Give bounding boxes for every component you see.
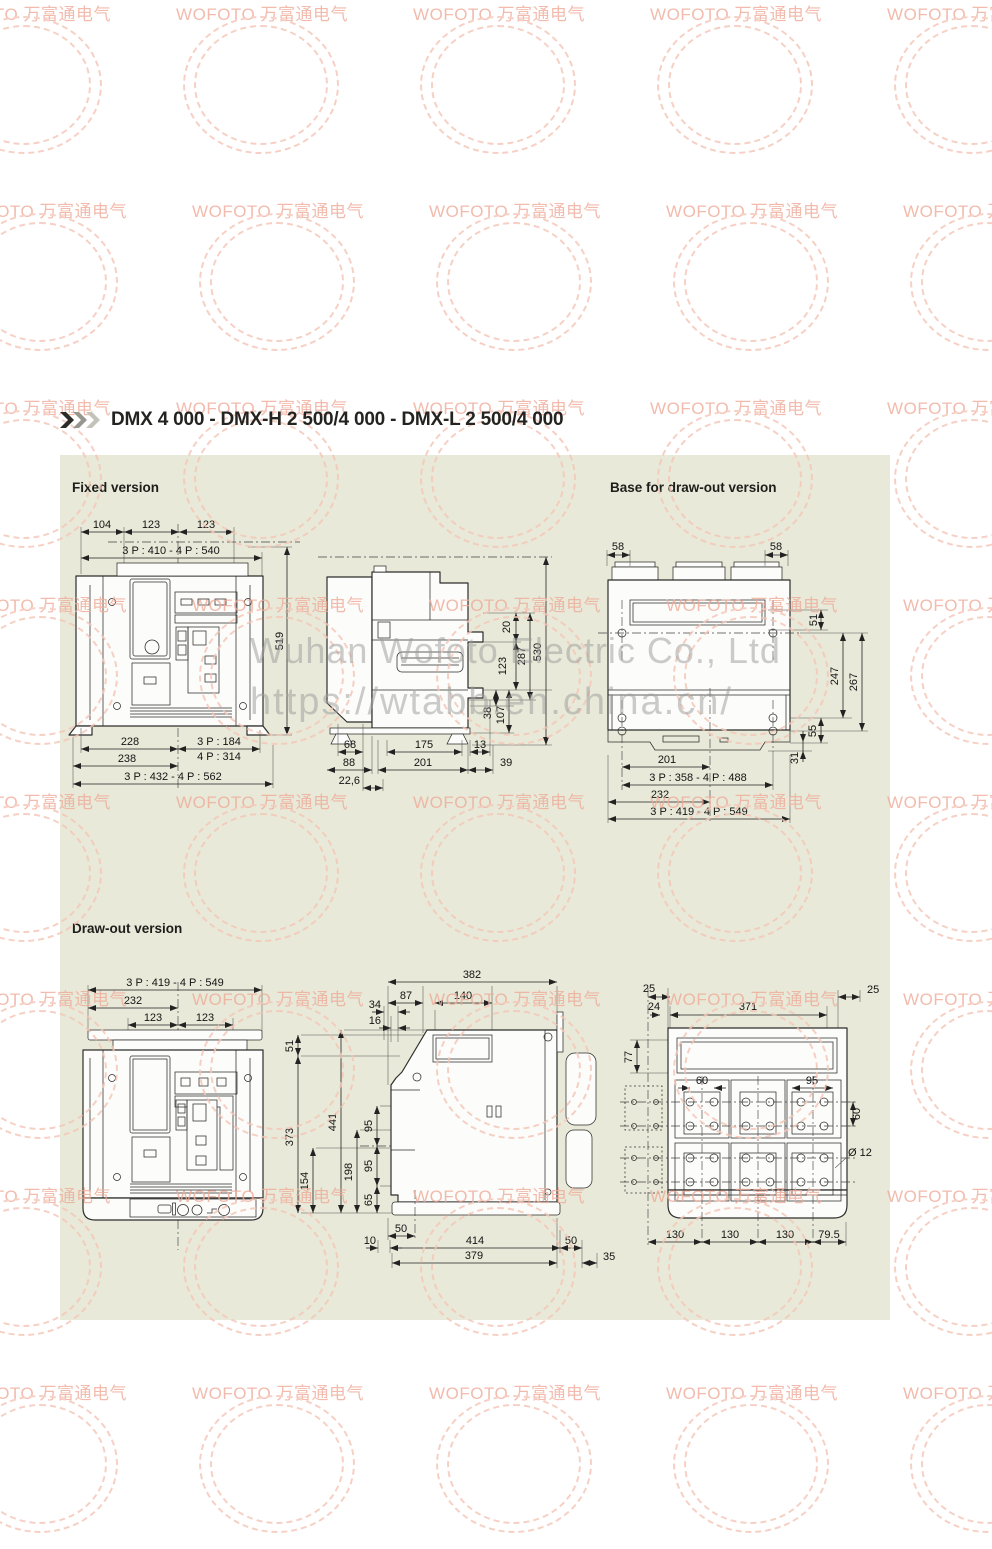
page-title: DMX 4 000 - DMX-H 2 500/4 000 - DMX-L 2 …: [111, 409, 563, 431]
watermark-stamp: WOFOTO 万富通电气: [657, 1379, 847, 1549]
dim-label: 123: [142, 519, 160, 531]
dim-label: 58: [612, 541, 624, 553]
dim-label: 24: [648, 1001, 660, 1013]
dim-label: 3 P : 358 - 4 P : 488: [649, 772, 746, 784]
dim-label: 79.5: [818, 1229, 839, 1241]
dim-label: 371: [739, 1001, 757, 1013]
dim-label: 140: [454, 990, 472, 1002]
watermark-stamp: WOFOTO 万富通电气: [183, 1379, 373, 1549]
section-label-fixed: Fixed version: [72, 480, 159, 495]
section-label-base: Base for draw-out version: [610, 480, 777, 495]
dim-label: 373: [284, 1128, 296, 1146]
dim-label: 35: [603, 1251, 615, 1263]
dim-label: 38: [482, 707, 494, 719]
stamp-ring-inner: [210, 1404, 344, 1524]
watermark-stamp: WOFOTO 万富通电气: [0, 1379, 136, 1549]
dim-label: 51: [284, 1040, 296, 1052]
dim-label: 4 P : 314: [197, 751, 241, 763]
drawout-rear-view: 25 25 24 371 77: [620, 983, 879, 1246]
dim-label: 379: [465, 1250, 483, 1262]
dim-label: 95: [363, 1160, 375, 1172]
dim-label: 95: [806, 1075, 818, 1087]
dim-label: 60: [851, 1108, 863, 1120]
dim-label: 60: [696, 1075, 708, 1087]
page-title-row: DMX 4 000 - DMX-H 2 500/4 000 - DMX-L 2 …: [60, 409, 563, 431]
stamp-ring-inner: [0, 1404, 107, 1524]
dim-label: 31: [789, 752, 801, 764]
stamp-ring-outer: [0, 1395, 118, 1533]
dim-label: 232: [651, 789, 669, 801]
dim-label: 65: [363, 1194, 375, 1206]
drawout-side-view: 382 87 140 34 16 50: [364, 969, 616, 1268]
stamp-ring-outer: [673, 1395, 829, 1533]
dim-label: 25: [643, 983, 655, 995]
dim-label: 228: [121, 736, 139, 748]
dim-label: 175: [415, 739, 433, 751]
dim-label: 441: [327, 1113, 339, 1131]
dim-label: 247: [829, 667, 841, 685]
dim-label: 123: [497, 657, 509, 675]
stamp-ring-inner: [921, 1404, 992, 1524]
dim-label: 50: [395, 1223, 407, 1235]
dim-label: 287: [516, 647, 528, 665]
dim-label: 130: [666, 1229, 684, 1241]
dim-label: 77: [623, 1051, 635, 1063]
dim-label: 232: [124, 995, 142, 1007]
dim-label: 238: [118, 753, 136, 765]
dim-label: 382: [463, 969, 481, 981]
dim-label: 530: [532, 643, 544, 661]
dim-label: 50: [565, 1235, 577, 1247]
watermark-stamp: WOFOTO 万富通电气: [420, 1379, 610, 1549]
dim-label: 16: [369, 1015, 381, 1027]
dim-label: 267: [848, 673, 860, 691]
dim-label: 123: [144, 1012, 162, 1024]
dim-label: Ø 12: [848, 1147, 872, 1159]
fixed-front-view: 104 123 123 3 P : 410 - 4 P : 540 519 22…: [69, 519, 300, 790]
stamp-ring-inner: [684, 1404, 818, 1524]
dim-label: 3 P : 419 - 4 P : 549: [126, 977, 223, 989]
fixed-side-view: 20 123 287 530 38 107 68 175 13 88 201 3…: [318, 557, 552, 791]
dim-label: 154: [299, 1172, 311, 1190]
dim-label: 10: [364, 1235, 376, 1247]
dim-label: 13: [474, 739, 486, 751]
dim-label: 201: [414, 757, 432, 769]
dim-label: 3 P : 432 - 4 P : 562: [124, 771, 221, 783]
dim-label: 88: [343, 757, 355, 769]
stamp-ring-outer: [436, 1395, 592, 1533]
dim-label: 198: [343, 1163, 355, 1181]
dim-label: 39: [500, 757, 512, 769]
dim-label: 25: [867, 984, 879, 996]
dim-label: 51: [808, 614, 820, 626]
dim-label: 519: [274, 632, 286, 650]
dim-label: 130: [721, 1229, 739, 1241]
dim-label: 123: [197, 519, 215, 531]
dim-label: 130: [776, 1229, 794, 1241]
section-label-drawout: Draw-out version: [72, 921, 182, 936]
dim-label: 104: [93, 519, 111, 531]
dim-label: 3 P : 419 - 4 P : 549: [650, 806, 747, 818]
dim-label: 201: [658, 754, 676, 766]
dim-label: 3 P : 184: [197, 736, 241, 748]
stamp-ring-outer: [199, 1395, 355, 1533]
dim-label: 107: [495, 706, 507, 724]
dim-label: 55: [807, 725, 819, 737]
dim-label: 123: [196, 1012, 214, 1024]
dim-label: 20: [501, 621, 513, 633]
dim-label: 22,6: [339, 775, 360, 787]
watermark-stamp: WOFOTO 万富通电气: [894, 1379, 992, 1549]
base-top-view: 58 58 51 247 267 55 31 201 3 P : 358 - 4…: [598, 541, 868, 823]
dim-label: 3 P : 410 - 4 P : 540: [122, 545, 219, 557]
catalog-page: { "page": { "title": "DMX 4 000 - DMX-H …: [0, 0, 992, 1404]
title-chevrons-icon: [60, 412, 102, 428]
dim-label: 95: [363, 1120, 375, 1132]
dim-label: 68: [344, 739, 356, 751]
dim-label: 58: [770, 541, 782, 553]
dim-label: 87: [400, 990, 412, 1002]
drawings-svg: 104 123 123 3 P : 410 - 4 P : 540 519 22…: [0, 0, 992, 1404]
stamp-ring-inner: [447, 1404, 581, 1524]
dim-label: 414: [466, 1235, 484, 1247]
stamp-ring-outer: [910, 1395, 992, 1533]
dim-label: 34: [369, 999, 381, 1011]
